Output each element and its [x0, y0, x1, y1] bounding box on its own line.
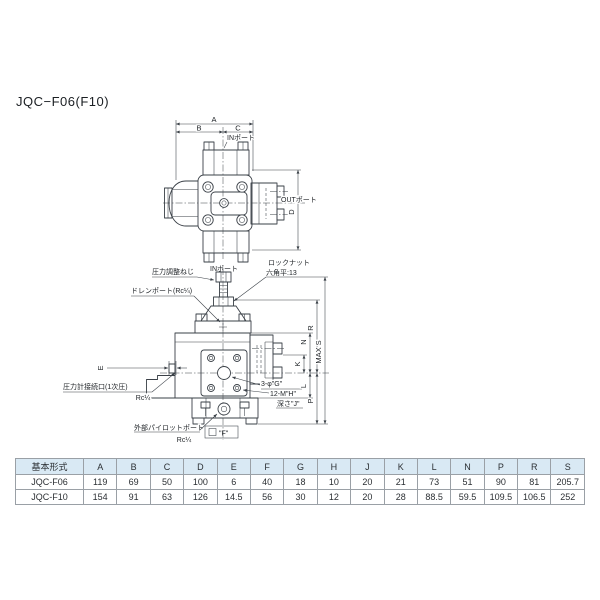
col-header: K — [384, 459, 417, 475]
col-header: J — [351, 459, 384, 475]
col-header: C — [150, 459, 183, 475]
catalog-page: JQC−F06(F10) — [0, 0, 600, 600]
col-header: B — [117, 459, 150, 475]
top-view-spring-dome — [165, 181, 199, 226]
front-view-out-port-block — [250, 335, 286, 384]
front-view-locknut-labels: ロックナット 六角平:13 — [234, 259, 328, 301]
dim-n-label: N — [299, 339, 308, 344]
dim-l-label: L — [299, 384, 308, 388]
value-cell: 40 — [250, 475, 283, 490]
pilot-port-label: 外部パイロットポート — [134, 423, 204, 432]
value-cell: 6 — [217, 475, 250, 490]
dim-c-label: C — [235, 124, 241, 133]
table-row: JQC-F10 154 91 63 126 14.5 56 30 12 20 2… — [16, 490, 585, 505]
pilot-port-size-label: Rc¼ — [177, 437, 192, 444]
value-cell: 81 — [518, 475, 551, 490]
value-cell: 10 — [317, 475, 350, 490]
threads-h-label: 12-M"H" — [270, 391, 296, 398]
value-cell: 20 — [351, 475, 384, 490]
col-header: G — [284, 459, 317, 475]
value-cell: 30 — [284, 490, 317, 505]
drain-port-label: ドレンポート(Rc¼) — [131, 287, 192, 295]
technical-drawing: A B C D INポート OUTポート INポート — [0, 0, 600, 456]
value-cell: 50 — [150, 475, 183, 490]
adjust-screw-label: 圧力調整ねじ — [152, 267, 194, 276]
col-header: F — [250, 459, 283, 475]
col-header: R — [518, 459, 551, 475]
value-cell: 20 — [351, 490, 384, 505]
value-cell: 73 — [417, 475, 450, 490]
value-cell: 106.5 — [518, 490, 551, 505]
value-cell: 51 — [451, 475, 484, 490]
col-header: S — [551, 459, 585, 475]
value-cell: 14.5 — [217, 490, 250, 505]
dim-b-label: B — [196, 124, 201, 133]
dim-r-label: R — [306, 325, 315, 331]
dim-e-label: E — [96, 365, 105, 370]
front-view: 圧力調整ねじ ドレンポート(Rc¼) 圧力計接続口(1次圧) Rc¼ E ロック… — [63, 259, 329, 444]
value-cell: 69 — [117, 475, 150, 490]
depth-j-label: 深さ"J" — [277, 399, 300, 408]
value-cell: 63 — [150, 490, 183, 505]
value-cell: 154 — [84, 490, 117, 505]
dim-k-label: K — [293, 361, 302, 366]
dim-a-label: A — [211, 115, 216, 124]
top-view-in-port-block-bottom — [203, 231, 249, 262]
col-header: N — [451, 459, 484, 475]
value-cell: 12 — [317, 490, 350, 505]
out-port-label: OUTポート — [281, 196, 317, 204]
col-header: 基本形式 — [16, 459, 84, 475]
top-view: A B C D INポート OUTポート INポート — [163, 115, 317, 273]
front-view-main-body — [147, 333, 251, 398]
table-header-row: 基本形式 A B C D E F G H J K L N P R S — [16, 459, 585, 475]
value-cell: 205.7 — [551, 475, 585, 490]
dim-max-s-label: MAX S — [314, 340, 323, 363]
front-view-bottom-plate — [192, 398, 258, 424]
value-cell: 252 — [551, 490, 585, 505]
value-cell: 90 — [484, 475, 517, 490]
value-cell: 18 — [284, 475, 317, 490]
col-header: E — [217, 459, 250, 475]
value-cell: 91 — [117, 490, 150, 505]
gauge-port-size-label: Rc¼ — [136, 395, 151, 402]
square-f-label: "F" — [219, 431, 229, 438]
holes-g-label: 3-φ"G" — [261, 381, 283, 388]
value-cell: 59.5 — [451, 490, 484, 505]
dim-p-label: P — [306, 398, 315, 403]
top-view-in-port-block-top — [203, 142, 249, 175]
col-header: P — [484, 459, 517, 475]
gauge-port-label: 圧力計接続口(1次圧) — [63, 382, 128, 391]
col-header: A — [84, 459, 117, 475]
col-header: D — [184, 459, 217, 475]
hex-flat-label: 六角平:13 — [266, 268, 297, 277]
lock-nut-label: ロックナット — [268, 259, 310, 267]
in-port-top-label: INポート — [227, 134, 255, 142]
model-cell: JQC-F06 — [16, 475, 84, 490]
value-cell: 21 — [384, 475, 417, 490]
value-cell: 56 — [250, 490, 283, 505]
front-view-left-labels: 圧力調整ねじ ドレンポート(Rc¼) 圧力計接続口(1次圧) Rc¼ E — [63, 267, 220, 402]
dim-d-label: D — [287, 209, 296, 215]
value-cell: 109.5 — [484, 490, 517, 505]
value-cell: 119 — [84, 475, 117, 490]
col-header: L — [417, 459, 450, 475]
square-symbol-icon — [209, 429, 216, 436]
value-cell: 28 — [384, 490, 417, 505]
model-cell: JQC-F10 — [16, 490, 84, 505]
value-cell: 88.5 — [417, 490, 450, 505]
value-cell: 100 — [184, 475, 217, 490]
dimension-table: 基本形式 A B C D E F G H J K L N P R S JQC-F… — [15, 458, 585, 505]
value-cell: 126 — [184, 490, 217, 505]
col-header: H — [317, 459, 350, 475]
table-row: JQC-F06 119 69 50 100 6 40 18 10 20 21 7… — [16, 475, 585, 490]
